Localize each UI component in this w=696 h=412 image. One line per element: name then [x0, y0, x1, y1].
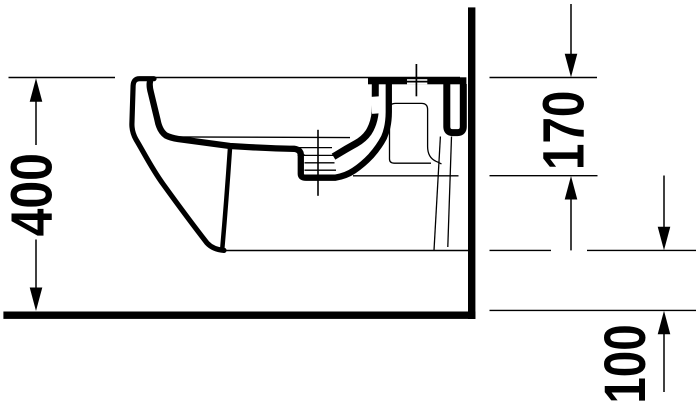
svg-text:170: 170 — [532, 91, 597, 170]
svg-text:400: 400 — [0, 153, 64, 236]
svg-text:100: 100 — [594, 324, 659, 403]
